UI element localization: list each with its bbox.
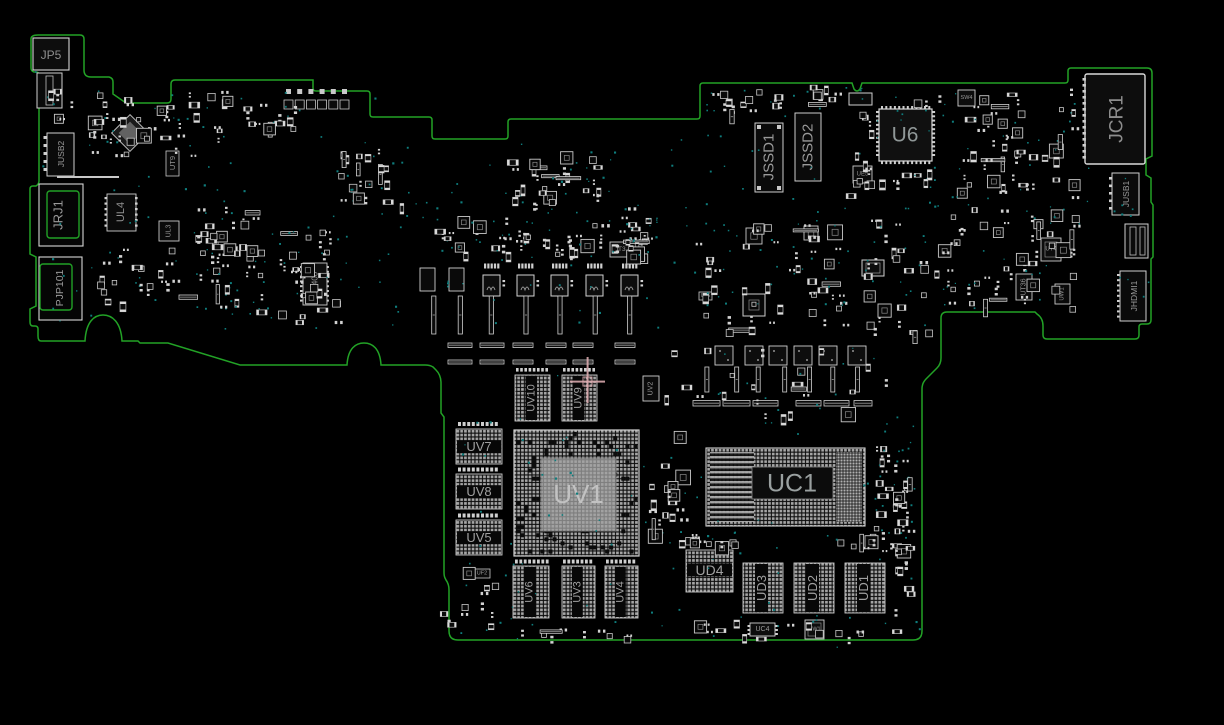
svg-text:UV4: UV4 — [614, 581, 626, 602]
svg-text:UV3: UV3 — [571, 581, 583, 602]
svg-text:UV8: UV8 — [466, 484, 491, 499]
svg-text:JUSB2: JUSB2 — [56, 141, 66, 168]
svg-text:UF2: UF2 — [477, 571, 487, 577]
svg-text:UV2: UV2 — [648, 382, 655, 396]
svg-text:UL3: UL3 — [166, 224, 173, 237]
svg-text:UC1: UC1 — [767, 470, 817, 498]
svg-text:JP5: JP5 — [41, 48, 62, 62]
svg-text:UE5: UE5 — [857, 172, 869, 178]
svg-text:UV1: UV1 — [553, 479, 604, 509]
svg-text:JUSB1: JUSB1 — [1121, 181, 1131, 208]
svg-text:UT9: UT9 — [168, 156, 177, 170]
svg-text:UV5: UV5 — [466, 530, 491, 545]
svg-text:UL4: UL4 — [115, 202, 127, 222]
svg-text:SW4: SW4 — [961, 95, 973, 101]
svg-text:UD2: UD2 — [805, 575, 820, 601]
svg-text:UW1: UW1 — [1060, 287, 1066, 301]
svg-text:UV7: UV7 — [466, 439, 491, 454]
svg-text:UV9: UV9 — [572, 387, 584, 408]
svg-text:UC4: UC4 — [755, 626, 769, 633]
svg-text:JSSD1: JSSD1 — [761, 134, 778, 181]
svg-text:JSSD2: JSSD2 — [800, 124, 817, 171]
svg-text:JHDMI1: JHDMI1 — [1129, 280, 1139, 311]
svg-text:JRJ1: JRJ1 — [51, 200, 66, 230]
svg-text:U6: U6 — [892, 124, 919, 147]
svg-text:UD4: UD4 — [695, 562, 723, 578]
svg-text:JCR1: JCR1 — [1107, 95, 1128, 143]
svg-text:UD1: UD1 — [856, 575, 871, 601]
svg-text:UV10: UV10 — [525, 384, 537, 412]
svg-text:UT36: UT36 — [1021, 278, 1028, 295]
svg-text:UD3: UD3 — [754, 575, 769, 601]
svg-text:UV6: UV6 — [524, 581, 536, 602]
